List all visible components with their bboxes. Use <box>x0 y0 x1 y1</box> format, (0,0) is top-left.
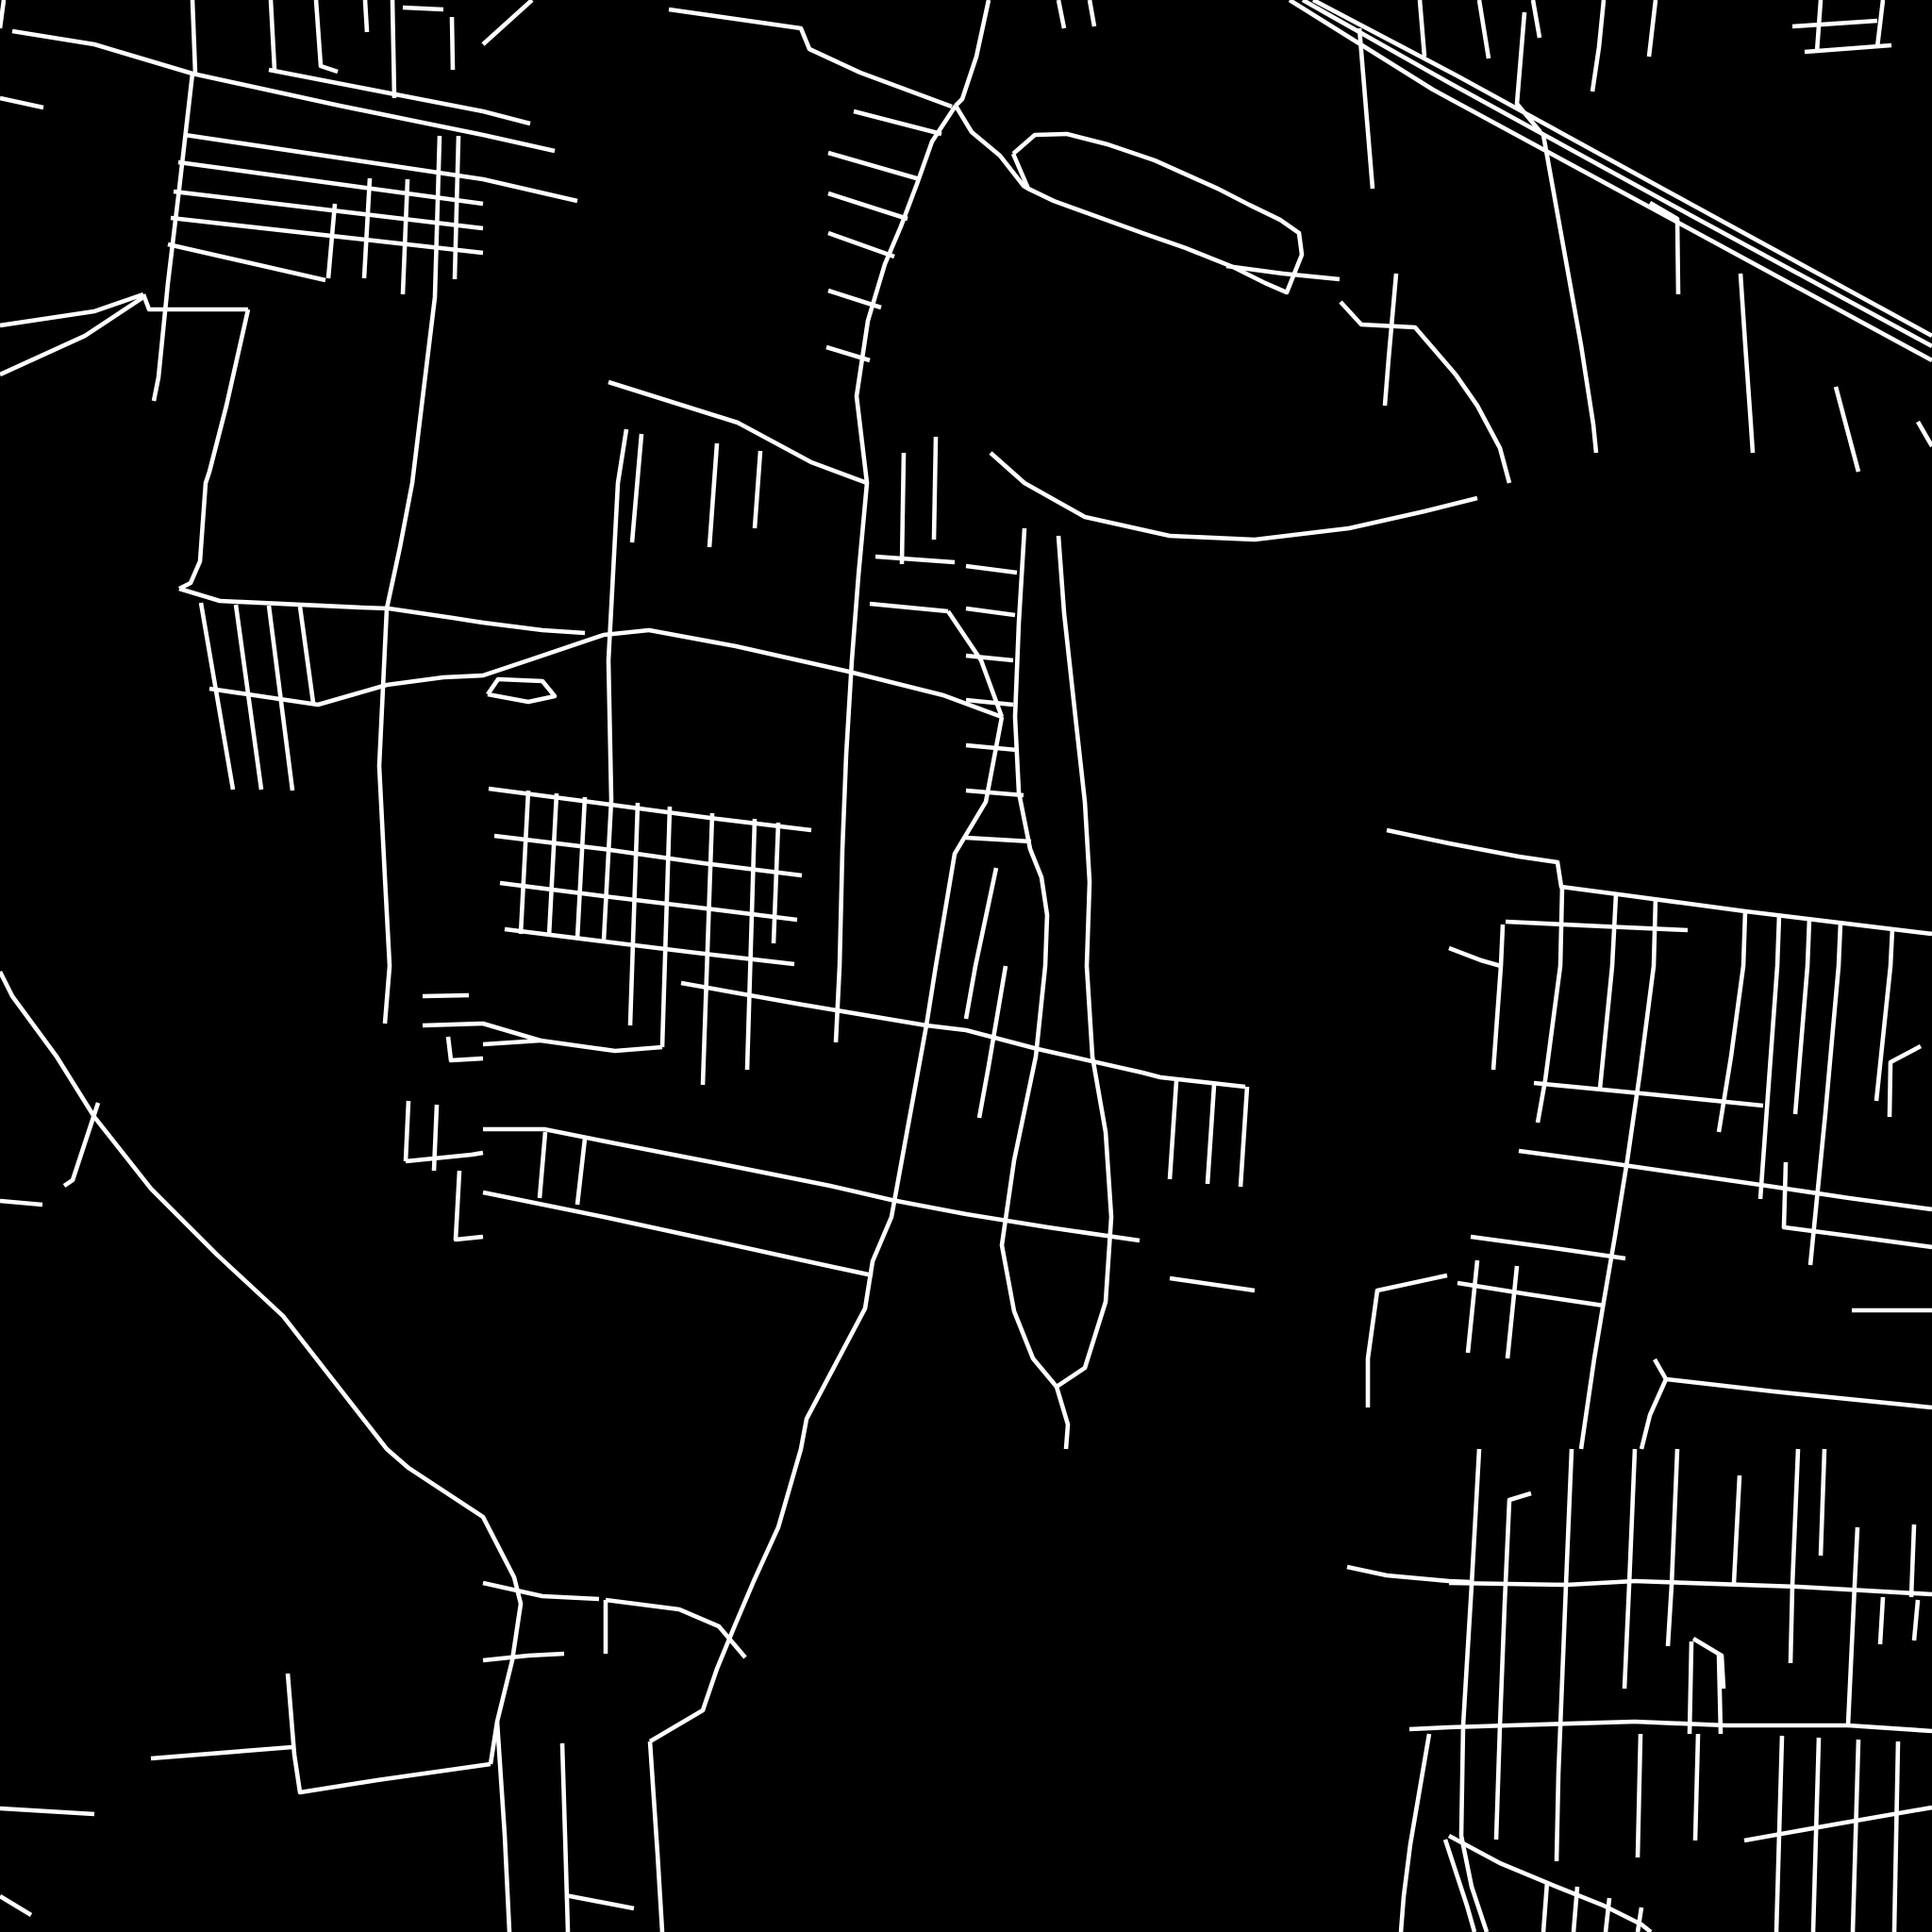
road-segment <box>966 868 996 1019</box>
road-segment <box>403 179 408 294</box>
road-segment <box>365 0 367 32</box>
road-segment <box>1090 0 1094 26</box>
road-segment <box>483 0 532 44</box>
road-segment <box>423 1024 541 1041</box>
road-segment <box>192 0 195 74</box>
road-segment <box>1821 1449 1824 1556</box>
road-segment <box>979 966 1006 1118</box>
road-segment <box>1468 1260 1477 1353</box>
road-segment <box>1420 0 1424 57</box>
road-segment <box>1813 1738 1819 1932</box>
road-segment <box>1471 1237 1625 1258</box>
road-segment <box>1519 1151 1932 1209</box>
road-segment <box>179 309 248 589</box>
road-segment <box>774 823 778 943</box>
road-segment <box>1341 302 1456 375</box>
road-segment <box>143 294 248 309</box>
road-segment <box>1792 21 1877 26</box>
road-segment <box>1456 375 1509 483</box>
road-segment <box>452 17 453 70</box>
road-segment <box>1719 1654 1721 1734</box>
road-segment <box>1880 1597 1883 1644</box>
road-segment <box>1690 1641 1691 1734</box>
road-segment <box>1744 1807 1932 1840</box>
road-segment <box>662 807 670 1047</box>
road-segment <box>966 791 1024 795</box>
road-segment <box>521 791 528 934</box>
road-segment <box>966 838 1031 841</box>
road-segment <box>483 1583 599 1599</box>
road-segment <box>1581 898 1656 1449</box>
road-segment <box>608 382 867 483</box>
road-segment <box>300 607 313 703</box>
road-segment <box>1795 919 1809 1114</box>
road-segment <box>379 136 440 1024</box>
road-segment <box>828 233 894 257</box>
road-segment <box>1649 0 1656 57</box>
road-segment <box>632 434 641 542</box>
road-segment <box>1695 1734 1698 1840</box>
road-segment <box>1877 0 1883 47</box>
road-segment <box>1911 1524 1914 1597</box>
road-segment <box>1303 0 1932 346</box>
road-segment <box>1347 1567 1472 1582</box>
road-segment <box>1496 1493 1531 1840</box>
road-segment <box>1533 0 1540 38</box>
road-segment <box>1002 528 1068 1449</box>
road-segment <box>902 453 904 564</box>
road-segment <box>1534 1083 1763 1106</box>
road-segment <box>1760 915 1779 1199</box>
road-segment <box>0 1808 94 1814</box>
road-segment <box>316 0 338 72</box>
road-segment <box>0 972 521 1764</box>
road-segment <box>1506 922 1688 930</box>
road-segment <box>1142 1073 1245 1087</box>
road-segment <box>828 193 908 219</box>
road-segment <box>489 789 811 830</box>
road-segment <box>151 1747 292 1758</box>
road-segment <box>650 717 1002 1741</box>
road-segment <box>1479 0 1489 58</box>
road-segment <box>703 813 712 1085</box>
road-segment <box>1457 1283 1604 1306</box>
road-segment <box>406 1101 408 1161</box>
road-segment <box>966 745 1017 750</box>
road-segment <box>483 1654 564 1660</box>
road-segment <box>577 797 585 939</box>
road-segment <box>1894 1741 1898 1932</box>
road-segment <box>577 1139 585 1205</box>
road-segment <box>549 793 557 936</box>
road-segment <box>0 0 4 28</box>
road-segment <box>966 656 1013 660</box>
road-segment <box>747 819 755 1070</box>
road-segment <box>1740 274 1753 453</box>
road-segment <box>1449 1836 1651 1932</box>
road-segment <box>1401 1734 1429 1932</box>
road-segment <box>630 803 638 1025</box>
road-segment <box>0 98 43 108</box>
road-segment <box>1241 1087 1247 1187</box>
road-segment <box>991 453 1477 540</box>
road-segment <box>1409 1727 1449 1729</box>
road-segment <box>1170 1081 1176 1179</box>
road-segment <box>271 0 275 70</box>
road-segment <box>540 1132 545 1198</box>
road-segment <box>168 244 325 280</box>
road-segment <box>0 297 143 375</box>
road-segment <box>966 566 1017 573</box>
road-segment <box>669 9 952 107</box>
road-segment <box>209 630 1002 717</box>
road-segment <box>403 8 443 9</box>
road-segment <box>423 995 469 996</box>
road-segment <box>709 443 717 547</box>
road-segment <box>1853 1740 1858 1932</box>
road-segment <box>483 1041 662 1051</box>
road-segment <box>1638 1907 1641 1932</box>
road-segment <box>1290 0 1932 360</box>
road-segment <box>483 1192 873 1275</box>
road-segment <box>1641 1379 1666 1449</box>
road-segment <box>1890 1046 1921 1117</box>
road-segment <box>1606 1898 1609 1932</box>
road-segment <box>650 1741 662 1932</box>
road-segment <box>604 429 626 941</box>
road-segment <box>1385 274 1396 406</box>
road-segment <box>154 74 192 401</box>
road-segment <box>1368 1275 1447 1407</box>
road-segment <box>854 111 941 134</box>
road-segment <box>456 1171 483 1240</box>
road-segment <box>1461 1449 1487 1932</box>
road-segment <box>1207 1085 1214 1184</box>
road-segment <box>448 1037 483 1060</box>
road-segment <box>1914 1600 1918 1641</box>
road-segment <box>1449 1581 1932 1594</box>
road-segment <box>1493 924 1503 1070</box>
road-segment <box>1057 536 1111 1387</box>
road-segment <box>328 204 335 278</box>
road-map-canvas <box>0 0 1932 1932</box>
road-segment <box>1836 387 1858 472</box>
road-segment <box>455 136 458 279</box>
road-segment <box>434 1105 437 1171</box>
road-segment <box>870 604 948 611</box>
road-segment <box>956 106 1028 189</box>
road-segment <box>1507 1266 1517 1358</box>
road-segment <box>1790 1449 1798 1663</box>
road-segment <box>406 1153 483 1161</box>
road-segment <box>1557 1449 1572 1861</box>
road-segment <box>966 608 1015 615</box>
road-segment <box>1543 135 1596 453</box>
road-segment <box>1600 894 1616 1089</box>
road-segment <box>1668 1449 1677 1646</box>
road-segment <box>201 603 233 790</box>
road-segment <box>1810 923 1840 1265</box>
road-segment <box>12 31 192 74</box>
road-segment <box>934 437 936 540</box>
road-segment <box>1624 1449 1635 1689</box>
road-segment <box>497 1722 509 1932</box>
road-segment <box>1449 948 1501 966</box>
road-segment <box>1918 422 1932 446</box>
road-segment <box>1848 1527 1857 1725</box>
road-segment <box>1058 0 1064 28</box>
road-segment <box>1543 1882 1547 1932</box>
road-segment <box>364 178 370 278</box>
road-segment <box>1387 830 1932 934</box>
road-segment <box>0 1201 42 1205</box>
road-segment <box>488 679 555 702</box>
road-segment <box>562 1743 568 1932</box>
road-network <box>0 0 1932 1932</box>
road-segment <box>1638 1734 1641 1857</box>
road-segment <box>1734 1475 1740 1583</box>
road-segment <box>1655 1359 1932 1407</box>
road-segment <box>192 74 555 151</box>
road-segment <box>828 153 920 179</box>
road-segment <box>875 557 955 562</box>
road-segment <box>956 0 989 106</box>
road-segment <box>755 451 760 528</box>
road-segment <box>392 0 394 98</box>
road-segment <box>1170 1278 1255 1291</box>
road-segment <box>1592 0 1604 92</box>
road-segment <box>836 106 956 1042</box>
road-segment <box>288 1674 491 1792</box>
road-segment <box>1719 911 1745 1132</box>
road-segment <box>565 1895 634 1908</box>
road-segment <box>0 1896 31 1915</box>
